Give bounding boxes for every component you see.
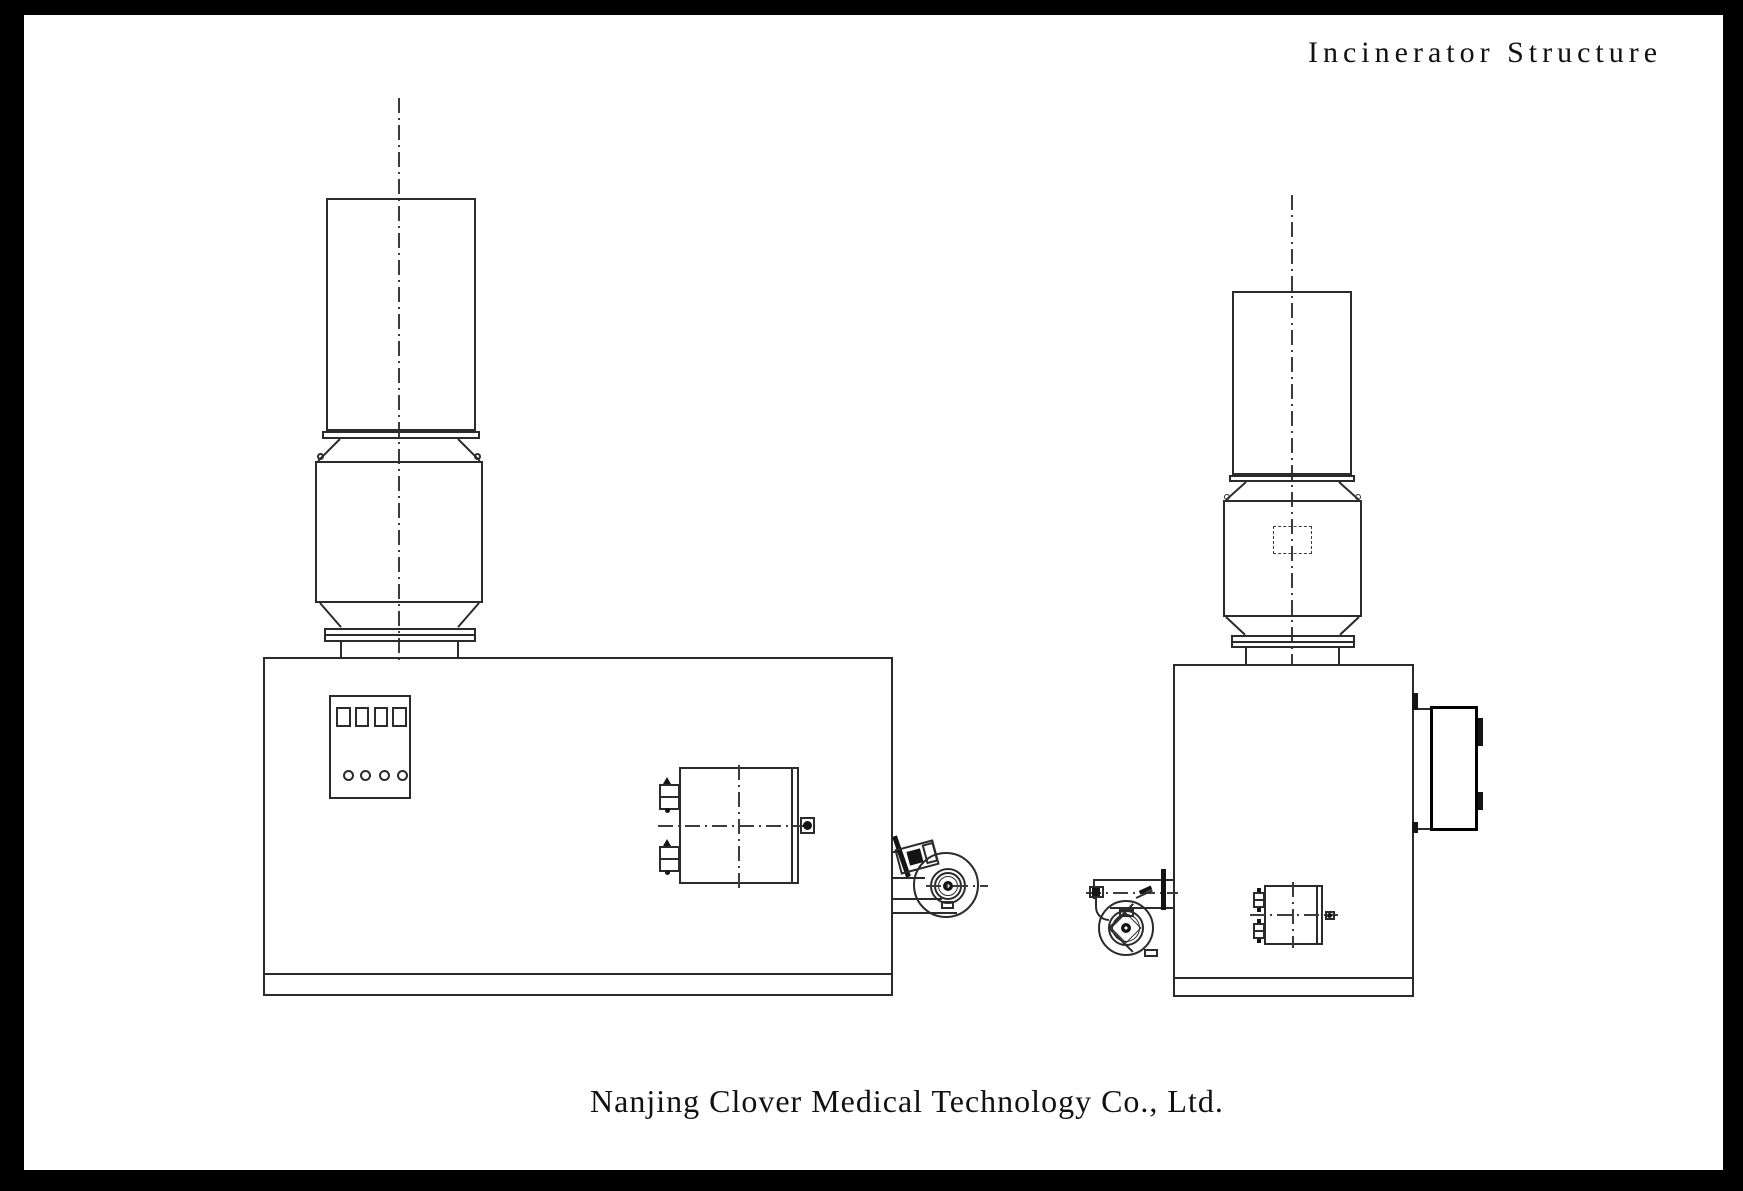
sheet-title: Incinerator Structure	[1308, 36, 1662, 70]
sheet-frame-right	[1723, 0, 1743, 1191]
door-panel	[1430, 706, 1478, 831]
control-panel-button	[343, 770, 354, 781]
sheet-frame-bottom	[0, 1170, 1743, 1191]
side-chimney-top-section	[1232, 291, 1352, 475]
side-chimney-flange-upper	[1229, 475, 1355, 482]
side-box-nozzle-tick	[1257, 908, 1261, 912]
side-base-line	[1173, 977, 1414, 979]
drawing-sheet: Incinerator Structure Nanjing Clover Med…	[0, 0, 1743, 1191]
front-blower-foot	[941, 901, 954, 909]
door-hinge	[1478, 792, 1483, 810]
front-chimney-mid-section	[315, 461, 483, 603]
side-transition-line	[1225, 616, 1245, 635]
control-panel-button	[379, 770, 390, 781]
front-base-line	[263, 973, 893, 975]
control-panel-window	[392, 707, 407, 727]
door-mount-tab	[1412, 693, 1418, 710]
front-blower-centerline	[926, 885, 988, 887]
side-blower-foot	[1144, 949, 1158, 957]
control-panel-window	[374, 707, 388, 727]
side-blower-hub	[1121, 923, 1131, 933]
front-stub-pipe	[340, 641, 342, 658]
control-panel-window	[336, 707, 351, 727]
company-name: Nanjing Clover Medical Technology Co., L…	[590, 1083, 1224, 1120]
side-box-nozzle-upper-midline	[1253, 899, 1265, 901]
control-panel-window	[355, 707, 369, 727]
side-transition-line	[1339, 616, 1359, 635]
side-box-nozzle-tick	[1257, 888, 1261, 892]
front-transition-line	[319, 602, 342, 627]
front-lifting-lug-right	[474, 453, 481, 460]
front-nozzle-lower-drain	[665, 870, 670, 875]
front-stub-pipe	[457, 641, 459, 658]
control-panel-button	[397, 770, 408, 781]
door-hinge	[1478, 718, 1483, 746]
side-stub-pipe	[1338, 648, 1340, 664]
front-flange-midline	[324, 634, 476, 636]
side-burner-end-core	[1092, 888, 1100, 896]
side-box-nozzle-lower-midline	[1253, 930, 1265, 932]
sheet-frame-top	[0, 0, 1743, 15]
sheet-frame-left	[0, 0, 24, 1191]
side-burner-flange	[1161, 869, 1166, 910]
front-nozzle-lower-midline	[659, 858, 680, 860]
front-sight-port-glass	[803, 821, 812, 830]
side-burner-wall-line	[1166, 907, 1173, 909]
side-lifting-lug-right	[1355, 494, 1361, 500]
side-box-sight-glass	[1327, 913, 1332, 918]
door-mount-tab	[1412, 822, 1418, 833]
front-nozzle-lower-valve	[663, 839, 671, 846]
front-chimney-top-section	[326, 198, 476, 431]
side-box-nozzle-tick	[1257, 939, 1261, 943]
control-panel-button	[360, 770, 371, 781]
front-transition-line	[457, 602, 480, 627]
side-chimney-mid-section	[1223, 500, 1362, 617]
front-burner-centerline-h	[658, 825, 818, 827]
front-lifting-lug-left	[317, 453, 324, 460]
front-chimney-flange-upper	[322, 431, 480, 439]
side-burner-pipe-top	[1093, 879, 1161, 881]
side-lifting-lug-left	[1224, 494, 1230, 500]
side-stub-pipe	[1245, 648, 1247, 664]
side-blower-top-fitting	[1119, 909, 1134, 917]
front-nozzle-upper-midline	[659, 796, 680, 798]
side-inspection-opening	[1273, 526, 1312, 554]
side-box-nozzle-tick	[1257, 919, 1261, 923]
front-nozzle-upper-drain	[665, 808, 670, 813]
front-nozzle-upper-valve	[663, 777, 671, 784]
side-flange-midline	[1231, 641, 1355, 643]
side-burner-wall-line	[1166, 879, 1173, 881]
